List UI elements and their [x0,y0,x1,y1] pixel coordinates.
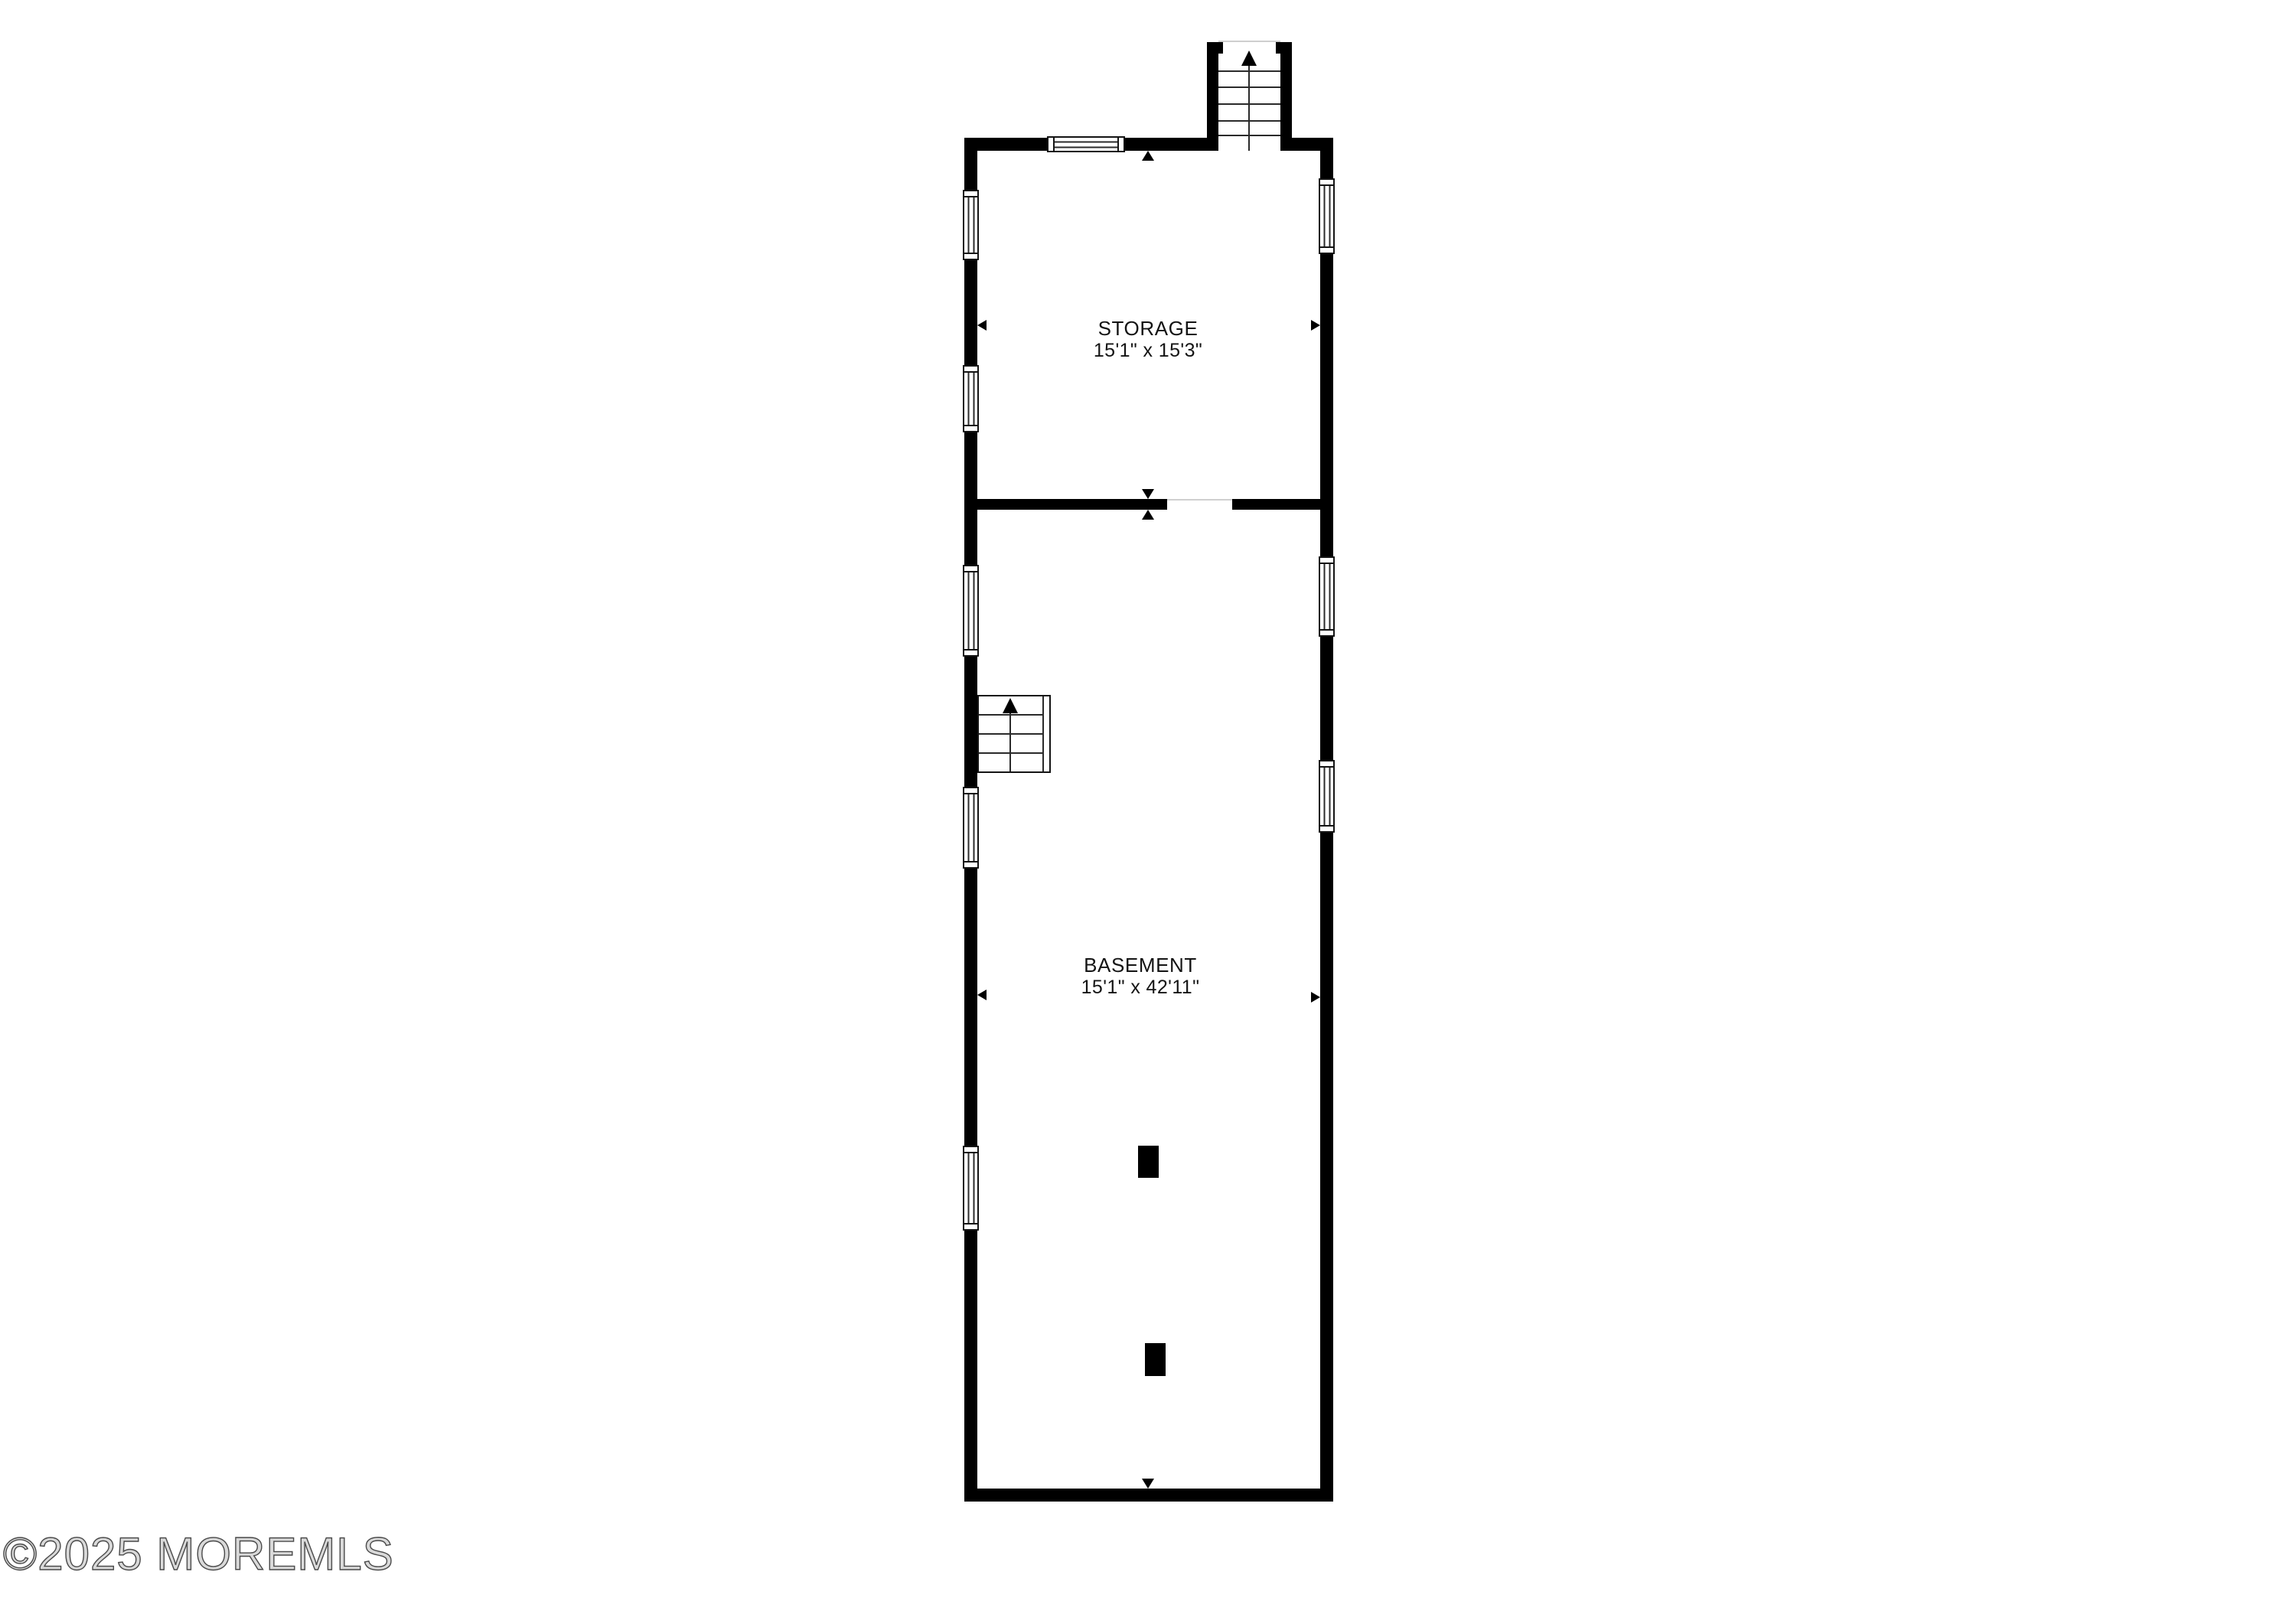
window-storage-left-1 [963,190,979,260]
stairwell-nub-right [1276,42,1280,54]
doorway-threshold-line [1167,499,1232,501]
basement-staircase [977,695,1051,773]
stairwell-wall-right [1280,42,1292,151]
floor-plan: STORAGE 15'1" x 15'3" BASEMENT 15'1" x 4… [0,0,2296,1624]
watermark: ©2025 MOREMLS [3,1528,394,1580]
stairwell-top-line [1218,41,1280,42]
dimension-arrow-icon [977,320,987,331]
divider-wall-right [1232,499,1333,510]
room-dimensions: 15'1" x 15'3" [1033,340,1263,362]
window-basement-left-1 [963,565,979,657]
stairwell-nub-left [1218,42,1223,54]
window-basement-right-2 [1319,760,1335,833]
window-basement-left-2 [963,787,979,869]
stairs-up-arrow-icon [1003,698,1018,713]
dimension-arrow-icon [1142,489,1154,499]
stairs-up-arrow-icon [1241,51,1257,66]
window-basement-left-3 [963,1146,979,1231]
window-storage-top [1047,136,1125,152]
wall-top-segment-b [1125,138,1218,151]
stairwell-wall-left [1207,42,1218,151]
window-basement-right-1 [1319,556,1335,637]
room-label-storage: STORAGE 15'1" x 15'3" [1033,317,1263,362]
dimension-arrow-icon [1311,320,1320,331]
dimension-arrow-icon [1142,1479,1154,1489]
dimension-arrow-icon [1311,992,1320,1003]
room-name: BASEMENT [1026,954,1255,977]
room-dimensions: 15'1" x 42'11" [1026,977,1255,999]
window-storage-left-2 [963,365,979,432]
column-post-2 [1145,1343,1166,1376]
dimension-arrow-icon [1142,510,1154,520]
dimension-arrow-icon [1142,151,1154,161]
column-post-1 [1138,1146,1159,1178]
wall-bottom [964,1489,1333,1502]
room-name: STORAGE [1033,317,1263,340]
dimension-arrow-icon [977,990,987,1000]
room-label-basement: BASEMENT 15'1" x 42'11" [1026,954,1255,999]
window-storage-right-1 [1319,178,1335,254]
divider-wall-left [964,499,1167,510]
